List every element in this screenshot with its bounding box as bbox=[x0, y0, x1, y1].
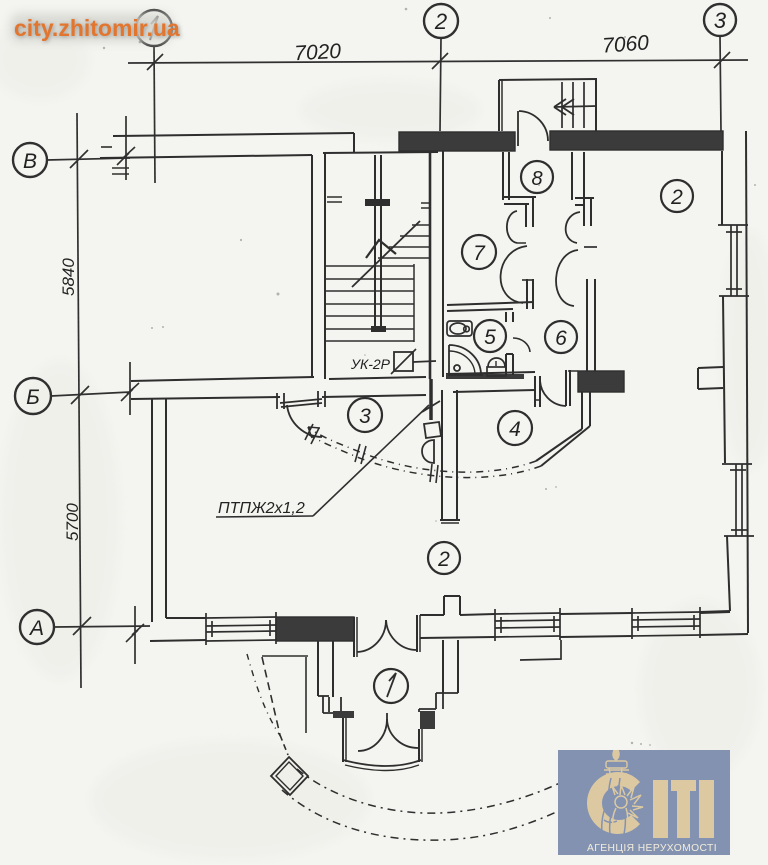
svg-text:7060: 7060 bbox=[601, 31, 650, 57]
svg-text:5840: 5840 bbox=[59, 258, 78, 296]
svg-text:АГЕНЦІЯ НЕРУХОМОСТІ: АГЕНЦІЯ НЕРУХОМОСТІ bbox=[587, 843, 717, 854]
svg-text:7: 7 bbox=[473, 242, 486, 265]
svg-text:5: 5 bbox=[484, 326, 496, 349]
svg-text:3: 3 bbox=[714, 8, 727, 33]
svg-text:7020: 7020 bbox=[294, 40, 342, 65]
svg-text:2: 2 bbox=[670, 186, 683, 209]
svg-text:Б: Б bbox=[26, 386, 40, 409]
svg-text:ПТПЖ2х1,2: ПТПЖ2х1,2 bbox=[218, 500, 305, 517]
svg-text:А: А bbox=[28, 617, 44, 640]
svg-text:6: 6 bbox=[555, 327, 567, 350]
svg-text:city.zhitomir.ua: city.zhitomir.ua bbox=[14, 15, 180, 41]
svg-text:В: В bbox=[23, 150, 37, 173]
svg-text:2: 2 bbox=[437, 548, 450, 571]
svg-text:8: 8 bbox=[531, 168, 542, 190]
svg-text:4: 4 bbox=[509, 418, 521, 441]
svg-text:УК-2Р: УК-2Р bbox=[350, 356, 391, 372]
svg-text:5700: 5700 bbox=[63, 503, 82, 541]
svg-text:2: 2 bbox=[434, 9, 447, 34]
svg-text:3: 3 bbox=[359, 405, 371, 428]
